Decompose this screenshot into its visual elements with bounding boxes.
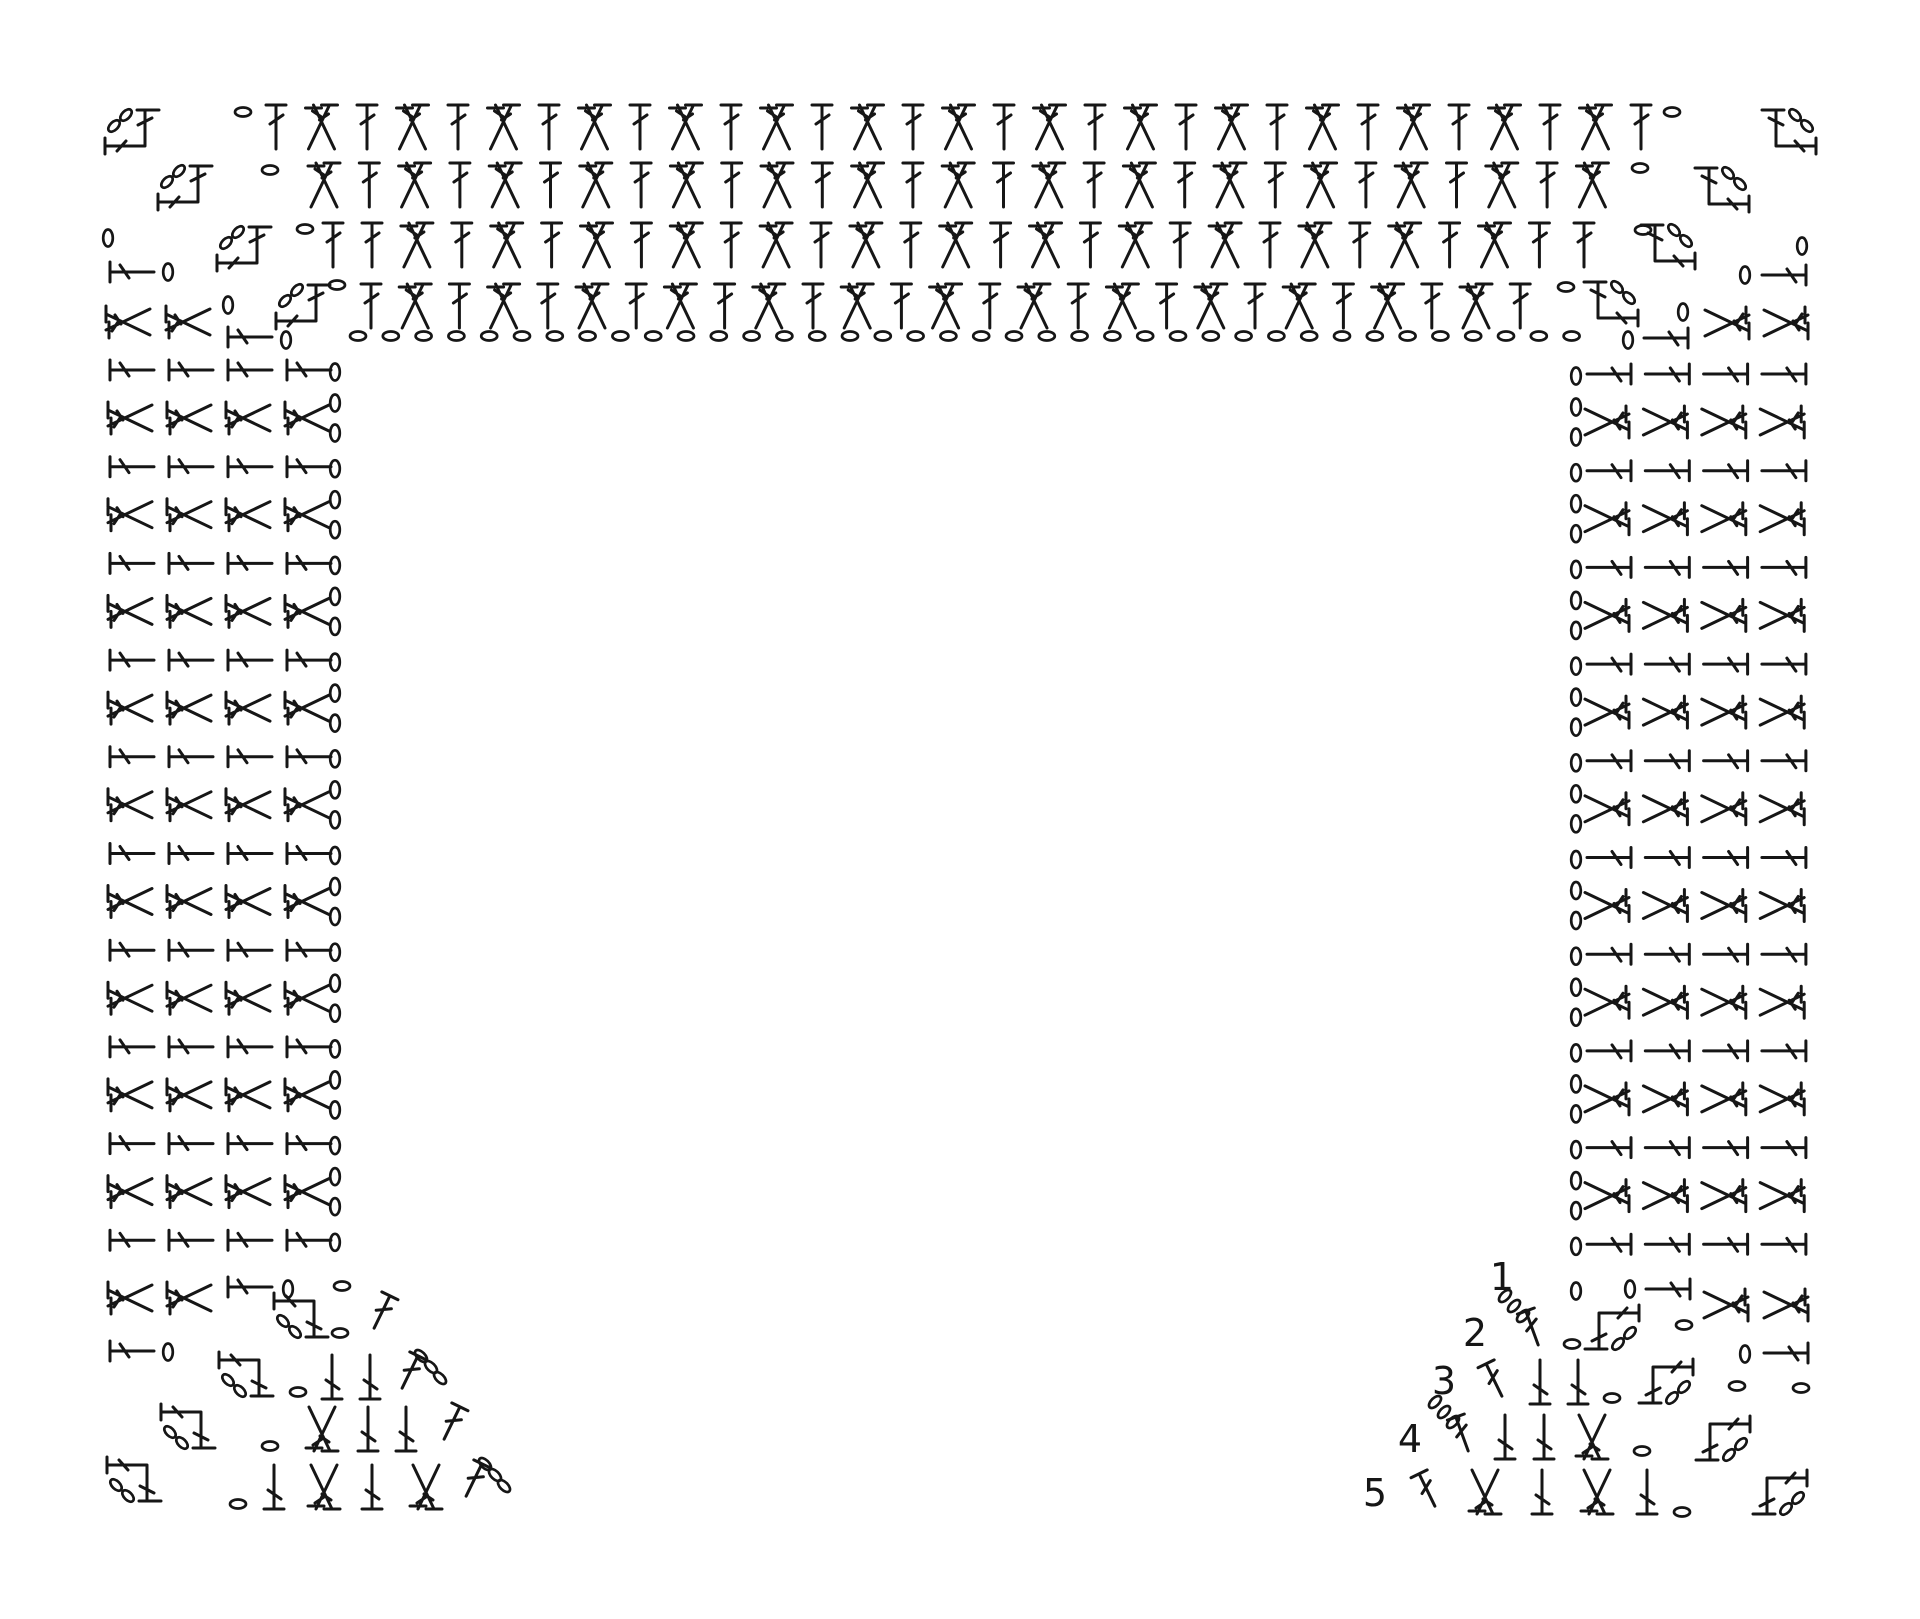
crossed-double-crochet-sideways-right-symbol — [1760, 503, 1804, 535]
double-crochet-sideways-right-symbol — [1762, 265, 1806, 285]
double-crochet-symbol — [991, 223, 1011, 267]
crossed-double-crochet-sideways-right-symbol — [1702, 986, 1746, 1018]
crossed-double-crochet-symbol — [576, 284, 608, 328]
double-crochet-sideways-right-symbol — [1587, 848, 1631, 868]
chain-stitch-symbol — [1571, 1283, 1581, 1300]
double-crochet-symbol — [1085, 105, 1105, 149]
double-crochet-sideways-left-symbol — [110, 940, 154, 960]
crossed-double-crochet-inverted-symbol — [1581, 1470, 1613, 1514]
chain-stitch-symbol — [103, 230, 113, 247]
crossed-double-crochet-sideways-right-symbol — [1760, 890, 1804, 922]
chain-stitch-symbol — [330, 811, 340, 828]
double-crochet-sideways-left-symbol — [169, 360, 213, 380]
chain-stitch-symbol — [1564, 1340, 1580, 1349]
crossed-double-crochet-symbol — [1216, 105, 1248, 149]
double-crochet-sideways-left-symbol — [228, 553, 272, 573]
crossed-double-crochet-sideways-left-symbol — [285, 789, 329, 821]
double-crochet-sideways-right-symbol — [1644, 328, 1688, 348]
chain-stitch-symbol — [1571, 495, 1581, 512]
double-crochet-sideways-left-symbol — [228, 940, 272, 960]
chain-stitch-symbol — [1571, 1075, 1581, 1092]
double-crochet-symbol — [1574, 223, 1594, 267]
double-crochet-symbol — [452, 223, 472, 267]
double-crochet-inverted-symbol — [1637, 1470, 1657, 1514]
crossed-double-crochet-sideways-right-symbol — [1760, 1180, 1804, 1212]
double-crochet-sideways-left-symbol — [287, 553, 331, 573]
crossed-double-crochet-sideways-left-symbol — [226, 1079, 270, 1111]
crossed-double-crochet-symbol — [1123, 163, 1155, 207]
crossed-double-crochet-symbol — [1119, 223, 1151, 267]
chain-stitch-symbol — [223, 297, 233, 314]
crossed-double-crochet-symbol — [488, 105, 520, 149]
corner-turning-chain-bottom-left-symbol — [107, 1457, 161, 1504]
double-crochet-sideways-right-symbol — [1587, 1138, 1631, 1158]
crossed-double-crochet-sideways-left-symbol — [285, 1176, 329, 1208]
crossed-double-crochet-symbol — [943, 105, 975, 149]
chain-stitch-symbol — [1571, 525, 1581, 542]
crossed-double-crochet-symbol — [1395, 163, 1427, 207]
chain-stitch-symbol — [547, 332, 563, 341]
crossed-double-crochet-sideways-right-symbol — [1585, 986, 1629, 1018]
double-crochet-sideways-right-symbol — [1645, 1138, 1689, 1158]
double-crochet-sideways-right-symbol — [1762, 557, 1806, 577]
crossed-double-crochet-sideways-left-symbol — [285, 595, 329, 627]
crossed-double-crochet-symbol — [1580, 105, 1612, 149]
chain-stitch-symbol — [330, 588, 340, 605]
double-crochet-sideways-left-symbol — [287, 360, 331, 380]
crossed-double-crochet-symbol — [1033, 163, 1065, 207]
crossed-double-crochet-sideways-left-symbol — [166, 306, 210, 338]
crossed-double-crochet-symbol — [580, 163, 612, 207]
crossed-double-crochet-symbol — [1305, 163, 1337, 207]
crossed-double-crochet-sideways-left-symbol — [285, 982, 329, 1014]
chain-stitch-symbol — [334, 1282, 350, 1291]
double-crochet-symbol — [1350, 223, 1370, 267]
crossed-double-crochet-sideways-left-symbol — [226, 886, 270, 918]
chain-stitch-symbol — [1571, 399, 1581, 416]
double-crochet-sideways-right-symbol — [1762, 1234, 1806, 1254]
chain-stitch-symbol — [940, 332, 956, 341]
crossed-double-crochet-sideways-left-symbol — [108, 499, 152, 531]
chain-stitch-symbol — [1301, 332, 1317, 341]
double-crochet-symbol — [538, 284, 558, 328]
double-crochet-sideways-left-symbol — [110, 553, 154, 573]
crossed-double-crochet-symbol — [841, 284, 873, 328]
crossed-double-crochet-symbol — [1214, 163, 1246, 207]
double-crochet-symbol — [266, 105, 286, 149]
double-crochet-sideways-right-symbol — [1587, 751, 1631, 771]
chain-stitch-symbol — [1571, 368, 1581, 385]
double-crochet-sideways-right-symbol — [1645, 1041, 1689, 1061]
crossed-double-crochet-sideways-right-symbol — [1585, 793, 1629, 825]
chain-stitch-symbol — [330, 685, 340, 702]
chain-stitch-symbol — [290, 1388, 306, 1397]
double-crochet-symbol — [539, 105, 559, 149]
double-crochet-symbol — [811, 223, 831, 267]
double-crochet-sideways-left-symbol — [169, 844, 213, 864]
double-crochet-sideways-right-symbol — [1704, 1234, 1748, 1254]
chain-stitch-symbol — [973, 332, 989, 341]
chain-stitch-symbol — [1571, 1044, 1581, 1061]
chain-stitch-symbol — [330, 425, 340, 442]
corner-turning-chain-bottom-right-symbol — [1696, 1416, 1750, 1463]
corner-turning-chain-top-left-symbol — [217, 224, 271, 271]
chain-stitch-symbol — [1367, 332, 1383, 341]
crossed-double-crochet-sideways-right-symbol — [1585, 503, 1629, 535]
double-crochet-inverted-symbol — [1532, 1470, 1552, 1514]
double-crochet-sideways-right-symbol — [1704, 461, 1748, 481]
crossed-double-crochet-symbol — [852, 163, 884, 207]
crossed-double-crochet-sideways-left-symbol — [108, 692, 152, 724]
chain-stitch-symbol — [330, 1101, 340, 1118]
crossed-double-crochet-symbol — [664, 284, 696, 328]
chain-stitch-symbol — [330, 618, 340, 635]
double-crochet-symbol — [903, 105, 923, 149]
chain-stitch-symbol — [1634, 1447, 1650, 1456]
double-crochet-symbol — [449, 284, 469, 328]
chain-stitch-symbol — [1006, 332, 1022, 341]
chain-stitch-symbol — [1571, 719, 1581, 736]
crossed-double-crochet-symbol — [489, 163, 521, 207]
crossed-double-crochet-sideways-right-symbol — [1702, 793, 1746, 825]
corner-turning-chain-top-left-symbol — [105, 107, 159, 154]
chain-stitch-symbol — [330, 1071, 340, 1088]
double-crochet-sideways-left-symbol — [228, 1277, 272, 1297]
chain-stitch-symbol — [1793, 1384, 1809, 1393]
double-crochet-inverted-symbol — [358, 1407, 378, 1451]
crossed-double-crochet-symbol — [1283, 284, 1315, 328]
crossed-double-crochet-sideways-right-symbol — [1643, 793, 1687, 825]
crossed-double-crochet-symbol — [581, 223, 613, 267]
row-start-double-crochet-left-symbol — [436, 1403, 468, 1443]
double-crochet-symbol — [541, 163, 561, 207]
chain-stitch-symbol — [281, 332, 291, 349]
double-crochet-sideways-left-symbol — [287, 940, 331, 960]
crossed-double-crochet-symbol — [1307, 105, 1339, 149]
double-crochet-sideways-left-symbol — [228, 844, 272, 864]
double-crochet-symbol — [1080, 223, 1100, 267]
crossed-double-crochet-sideways-left-symbol — [226, 402, 270, 434]
crossed-double-crochet-inverted-symbol — [306, 1407, 338, 1451]
crossed-double-crochet-sideways-left-symbol — [226, 982, 270, 1014]
chain-stitch-symbol — [1674, 1508, 1690, 1517]
crossed-double-crochet-sideways-left-symbol — [106, 306, 150, 338]
crossed-double-crochet-symbol — [1195, 284, 1227, 328]
chain-stitch-symbol — [1678, 304, 1688, 321]
crossed-double-crochet-symbol — [1125, 105, 1157, 149]
crossed-double-crochet-sideways-left-symbol — [167, 982, 211, 1014]
crossed-double-crochet-symbol — [399, 163, 431, 207]
crossed-double-crochet-sideways-left-symbol — [108, 1079, 152, 1111]
chain-stitch-symbol — [330, 847, 340, 864]
crossed-double-crochet-symbol — [306, 105, 338, 149]
double-crochet-sideways-left-symbol — [287, 650, 331, 670]
crossed-double-crochet-sideways-left-symbol — [167, 402, 211, 434]
crossed-double-crochet-inverted-symbol — [410, 1465, 442, 1509]
crossed-double-crochet-sideways-right-symbol — [1643, 890, 1687, 922]
double-crochet-symbol — [1170, 223, 1190, 267]
crossed-double-crochet-symbol — [1460, 284, 1492, 328]
double-crochet-symbol — [891, 284, 911, 328]
double-crochet-inverted-symbol — [1534, 1415, 1554, 1459]
double-crochet-sideways-right-symbol — [1704, 364, 1748, 384]
crossed-double-crochet-symbol — [397, 105, 429, 149]
double-crochet-sideways-left-symbol — [110, 457, 154, 477]
crossed-double-crochet-sideways-left-symbol — [226, 595, 270, 627]
crossed-double-crochet-symbol — [761, 163, 793, 207]
double-crochet-symbol — [1537, 163, 1557, 207]
crossed-double-crochet-symbol — [1034, 105, 1066, 149]
chain-stitch-symbol — [330, 1137, 340, 1154]
chain-stitch-symbol — [330, 1040, 340, 1057]
double-crochet-symbol — [1267, 105, 1287, 149]
crossed-double-crochet-sideways-right-symbol — [1760, 986, 1804, 1018]
double-crochet-sideways-right-symbol — [1645, 944, 1689, 964]
double-crochet-sideways-left-symbol — [228, 1230, 272, 1250]
double-crochet-sideways-right-symbol — [1587, 364, 1631, 384]
chain-stitch-symbol — [230, 1500, 246, 1509]
double-crochet-inverted-symbol — [360, 1355, 380, 1399]
double-crochet-sideways-right-symbol — [1762, 654, 1806, 674]
double-crochet-sideways-left-symbol — [228, 747, 272, 767]
crossed-double-crochet-symbol — [942, 163, 974, 207]
row-number-label: 5 — [1363, 1471, 1387, 1515]
double-crochet-symbol — [901, 223, 921, 267]
chain-stitch-symbol — [875, 332, 891, 341]
chain-stitch-symbol — [1604, 1394, 1620, 1403]
crossed-double-crochet-sideways-right-symbol — [1702, 1083, 1746, 1115]
chain-stitch-symbol — [330, 395, 340, 412]
double-crochet-symbol — [994, 163, 1014, 207]
crossed-double-crochet-sideways-right-symbol — [1643, 1180, 1687, 1212]
chain-stitch-symbol — [1571, 1172, 1581, 1189]
chain-stitch-symbol — [330, 781, 340, 798]
chain-stitch-symbol — [1571, 592, 1581, 609]
corner-turning-chain-top-right-symbol — [1584, 279, 1638, 326]
crossed-double-crochet-sideways-left-symbol — [167, 595, 211, 627]
crossed-double-crochet-sideways-right-symbol — [1702, 1180, 1746, 1212]
crossed-double-crochet-sideways-left-symbol — [167, 692, 211, 724]
row-start-double-crochet-right-symbol — [1411, 1470, 1443, 1510]
chain-stitch-symbol — [908, 332, 924, 341]
chain-stitch-symbol — [1797, 238, 1807, 255]
double-crochet-sideways-right-symbol — [1762, 1138, 1806, 1158]
crossed-double-crochet-symbol — [491, 223, 523, 267]
double-crochet-sideways-left-symbol — [169, 940, 213, 960]
crossed-double-crochet-sideways-left-symbol — [167, 789, 211, 821]
chain-stitch-symbol — [1571, 689, 1581, 706]
crossed-double-crochet-symbol — [579, 105, 611, 149]
chain-stitch-symbol — [416, 332, 432, 341]
double-crochet-sideways-right-symbol — [1762, 461, 1806, 481]
double-crochet-inverted-symbol — [396, 1407, 416, 1451]
chain-stitch-symbol — [330, 460, 340, 477]
double-crochet-symbol — [1356, 163, 1376, 207]
double-crochet-symbol — [359, 163, 379, 207]
double-crochet-sideways-left-symbol — [110, 1134, 154, 1154]
crossed-double-crochet-sideways-left-symbol — [167, 1079, 211, 1111]
chain-stitch-symbol — [1571, 912, 1581, 929]
double-crochet-symbol — [1540, 105, 1560, 149]
chain-stitch-symbol — [1039, 332, 1055, 341]
corner-turning-chain-bottom-right-symbol — [1753, 1470, 1807, 1517]
double-crochet-sideways-left-symbol — [287, 747, 331, 767]
double-crochet-symbol — [1265, 163, 1285, 207]
crossed-double-crochet-symbol — [1398, 105, 1430, 149]
double-crochet-symbol — [630, 105, 650, 149]
chain-stitch-symbol — [1400, 332, 1416, 341]
chain-stitch-symbol — [1571, 754, 1581, 771]
double-crochet-sideways-left-symbol — [228, 360, 272, 380]
row-number-label: 4 — [1398, 1417, 1422, 1461]
crossed-double-crochet-sideways-left-symbol — [167, 1176, 211, 1208]
chain-stitch-symbol — [1740, 1346, 1750, 1363]
crossed-double-crochet-sideways-left-symbol — [285, 499, 329, 531]
corner-turning-chain-bottom-left-symbol — [219, 1352, 273, 1399]
crossed-double-crochet-sideways-right-symbol — [1585, 406, 1629, 438]
double-crochet-symbol — [323, 223, 343, 267]
double-crochet-symbol — [980, 284, 1000, 328]
crossed-double-crochet-symbol — [401, 223, 433, 267]
double-crochet-symbol — [903, 163, 923, 207]
double-crochet-symbol — [1068, 284, 1088, 328]
chain-stitch-symbol — [1170, 332, 1186, 341]
crossed-double-crochet-symbol — [308, 163, 340, 207]
crossed-double-crochet-sideways-right-symbol — [1760, 1083, 1804, 1115]
chain-stitch-symbol — [1268, 332, 1284, 341]
double-crochet-sideways-left-symbol — [110, 1341, 154, 1361]
double-crochet-sideways-right-symbol — [1645, 557, 1689, 577]
crossed-double-crochet-sideways-right-symbol — [1643, 986, 1687, 1018]
chain-stitch-symbol — [481, 332, 497, 341]
chain-stitch-symbol — [1465, 332, 1481, 341]
crochet-chart-svg: 12345 — [0, 0, 1920, 1619]
chain-stitch-symbol — [514, 332, 530, 341]
crossed-double-crochet-sideways-right-symbol — [1760, 599, 1804, 631]
crossed-double-crochet-symbol — [488, 284, 520, 328]
double-crochet-symbol — [450, 163, 470, 207]
chain-stitch-symbol — [1729, 1382, 1745, 1391]
double-crochet-sideways-right-symbol — [1762, 364, 1806, 384]
double-crochet-sideways-left-symbol — [169, 1037, 213, 1057]
chain-stitch-symbol — [678, 332, 694, 341]
crossed-double-crochet-sideways-left-symbol — [285, 1079, 329, 1111]
chain-stitch-symbol — [330, 491, 340, 508]
chain-stitch-symbol — [1571, 429, 1581, 446]
crossed-double-crochet-symbol — [852, 105, 884, 149]
double-crochet-sideways-right-symbol — [1762, 1041, 1806, 1061]
double-crochet-sideways-left-symbol — [287, 1134, 331, 1154]
double-crochet-symbol — [1631, 105, 1651, 149]
crossed-double-crochet-symbol — [1209, 223, 1241, 267]
crossed-double-crochet-inverted-symbol — [308, 1465, 340, 1509]
crossed-double-crochet-sideways-left-symbol — [167, 1282, 211, 1314]
double-crochet-sideways-left-symbol — [110, 360, 154, 380]
crossed-double-crochet-sideways-right-symbol — [1705, 307, 1749, 339]
crossed-double-crochet-sideways-left-symbol — [108, 789, 152, 821]
double-crochet-symbol — [1422, 284, 1442, 328]
crossed-double-crochet-sideways-right-symbol — [1702, 696, 1746, 728]
crossed-double-crochet-sideways-left-symbol — [285, 692, 329, 724]
crossed-double-crochet-symbol — [753, 284, 785, 328]
double-crochet-sideways-left-symbol — [228, 1037, 272, 1057]
crossed-double-crochet-sideways-right-symbol — [1760, 793, 1804, 825]
double-crochet-symbol — [812, 163, 832, 207]
chain-stitch-symbol — [330, 1005, 340, 1022]
chain-stitch-symbol — [448, 332, 464, 341]
double-crochet-symbol — [362, 223, 382, 267]
crossed-double-crochet-sideways-right-symbol — [1643, 696, 1687, 728]
crossed-double-crochet-sideways-right-symbol — [1585, 696, 1629, 728]
double-crochet-symbol — [1175, 163, 1195, 207]
chain-stitch-symbol — [809, 332, 825, 341]
chain-stitch-symbol — [262, 1442, 278, 1451]
chain-stitch-symbol — [1571, 1105, 1581, 1122]
double-crochet-symbol — [1440, 223, 1460, 267]
crossed-double-crochet-symbol — [670, 223, 702, 267]
double-crochet-symbol — [721, 105, 741, 149]
crossed-double-crochet-inverted-symbol — [1576, 1415, 1608, 1459]
crossed-double-crochet-sideways-right-symbol — [1585, 890, 1629, 922]
corner-turning-chain-bottom-left-symbol — [161, 1404, 215, 1451]
crossed-double-crochet-sideways-left-symbol — [108, 982, 152, 1014]
double-crochet-symbol — [722, 163, 742, 207]
chain-stitch-symbol — [1625, 1281, 1635, 1298]
row-start-double-crochet-right-symbol — [1478, 1360, 1510, 1400]
crossed-double-crochet-sideways-left-symbol — [167, 886, 211, 918]
crossed-double-crochet-symbol — [670, 105, 702, 149]
chain-stitch-symbol — [1571, 561, 1581, 578]
chain-stitch-symbol — [1571, 815, 1581, 832]
crossed-double-crochet-sideways-right-symbol — [1760, 406, 1804, 438]
double-crochet-symbol — [715, 284, 735, 328]
double-crochet-symbol — [448, 105, 468, 149]
double-crochet-inverted-symbol — [1530, 1360, 1550, 1404]
chain-stitch-symbol — [262, 166, 278, 175]
chain-stitch-symbol — [1571, 948, 1581, 965]
chain-stitch-symbol — [330, 1198, 340, 1215]
double-crochet-sideways-right-symbol — [1762, 944, 1806, 964]
crossed-double-crochet-sideways-right-symbol — [1702, 406, 1746, 438]
crossed-double-crochet-symbol — [399, 284, 431, 328]
chain-stitch-symbol — [1571, 1238, 1581, 1255]
crossed-double-crochet-sideways-right-symbol — [1764, 1289, 1808, 1321]
crossed-double-crochet-symbol — [1372, 284, 1404, 328]
crossed-double-crochet-sideways-left-symbol — [108, 1282, 152, 1314]
double-crochet-symbol — [1260, 223, 1280, 267]
double-crochet-sideways-right-symbol — [1645, 751, 1689, 771]
chain-stitch-symbol — [330, 975, 340, 992]
double-crochet-symbol — [1176, 105, 1196, 149]
chain-stitch-symbol — [580, 332, 596, 341]
crossed-double-crochet-sideways-left-symbol — [226, 499, 270, 531]
double-crochet-sideways-right-symbol — [1704, 654, 1748, 674]
corner-turning-chain-top-left-symbol — [158, 163, 212, 210]
chain-stitch-symbol — [1664, 108, 1680, 117]
double-crochet-symbol — [1245, 284, 1265, 328]
double-crochet-symbol — [1084, 163, 1104, 207]
double-crochet-sideways-right-symbol — [1704, 751, 1748, 771]
row-start-double-crochet-left-symbol — [366, 1292, 398, 1332]
chain-stitch-symbol — [1571, 882, 1581, 899]
double-crochet-inverted-symbol — [362, 1465, 382, 1509]
chain-stitch-symbol — [330, 1234, 340, 1251]
chain-stitch-symbol — [163, 1344, 173, 1361]
double-crochet-sideways-left-symbol — [228, 650, 272, 670]
double-crochet-sideways-left-symbol — [110, 1037, 154, 1057]
chain-stitch-symbol — [1334, 332, 1350, 341]
double-crochet-sideways-right-symbol — [1645, 654, 1689, 674]
